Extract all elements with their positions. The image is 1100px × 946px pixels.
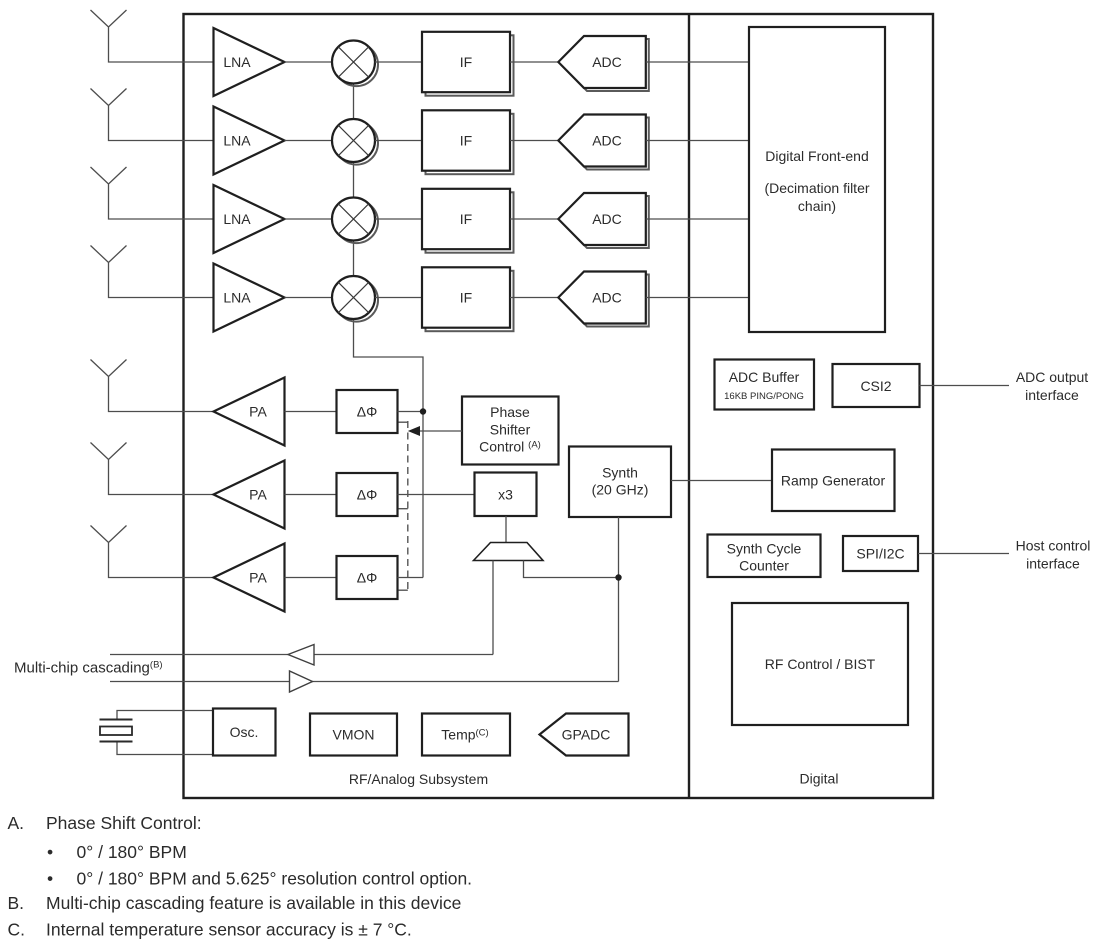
svg-text:C.: C.	[8, 920, 26, 940]
svg-text:SPI/I2C: SPI/I2C	[856, 546, 904, 562]
svg-text:VMON: VMON	[333, 727, 375, 743]
svg-text:ΔΦ: ΔΦ	[357, 570, 378, 586]
svg-text:Host control: Host control	[1016, 538, 1091, 554]
svg-text:Digital Front-end: Digital Front-end	[765, 148, 869, 164]
svg-text:Phase: Phase	[490, 404, 530, 420]
svg-text:Osc.: Osc.	[230, 724, 259, 740]
svg-text:•: •	[47, 842, 53, 862]
svg-text:RF Control / BIST: RF Control / BIST	[765, 656, 876, 672]
svg-text:(Decimation filter: (Decimation filter	[764, 180, 869, 196]
svg-text:Ramp Generator: Ramp Generator	[781, 473, 886, 489]
svg-text:LNA: LNA	[223, 290, 251, 306]
svg-text:Synth: Synth	[602, 465, 638, 481]
svg-text:PA: PA	[249, 404, 267, 420]
svg-text:LNA: LNA	[223, 54, 251, 70]
svg-text:LNA: LNA	[223, 211, 251, 227]
svg-text:chain): chain)	[798, 198, 836, 214]
svg-text:CSI2: CSI2	[860, 378, 891, 394]
svg-text:IF: IF	[460, 54, 472, 70]
svg-text:x3: x3	[498, 487, 513, 503]
svg-text:Shifter: Shifter	[490, 422, 531, 438]
svg-text:16KB PING/PONG: 16KB PING/PONG	[724, 391, 804, 402]
svg-text:A.: A.	[8, 813, 25, 833]
svg-text:Internal temperature sensor ac: Internal temperature sensor accuracy is …	[46, 920, 412, 940]
svg-text:RF/Analog Subsystem: RF/Analog Subsystem	[349, 771, 488, 787]
svg-text:interface: interface	[1026, 556, 1080, 572]
svg-text:ADC output: ADC output	[1016, 369, 1088, 385]
svg-text:0° / 180° BPM and 5.625° resol: 0° / 180° BPM and 5.625° resolution cont…	[77, 869, 473, 889]
svg-text:IF: IF	[460, 211, 472, 227]
svg-text:Multi-chip cascading(B): Multi-chip cascading(B)	[14, 660, 163, 677]
svg-text:ADC: ADC	[592, 211, 622, 227]
svg-text:PA: PA	[249, 570, 267, 586]
svg-text:ΔΦ: ΔΦ	[357, 404, 378, 420]
svg-text:(20 GHz): (20 GHz)	[592, 482, 649, 498]
svg-text:GPADC: GPADC	[562, 727, 611, 743]
svg-text:ADC: ADC	[592, 54, 622, 70]
svg-text:ADC: ADC	[592, 290, 622, 306]
svg-text:IF: IF	[460, 133, 472, 149]
svg-text:ADC Buffer: ADC Buffer	[729, 369, 800, 385]
svg-text:Synth Cycle: Synth Cycle	[727, 541, 802, 557]
svg-text:ΔΦ: ΔΦ	[357, 487, 378, 503]
svg-text:B.: B.	[8, 893, 25, 913]
svg-text:Digital: Digital	[800, 771, 839, 787]
svg-text:•: •	[47, 869, 53, 889]
svg-text:0° / 180° BPM: 0° / 180° BPM	[77, 842, 187, 862]
svg-text:Multi-chip cascading feature i: Multi-chip cascading feature is availabl…	[46, 893, 461, 913]
svg-text:PA: PA	[249, 487, 267, 503]
svg-text:LNA: LNA	[223, 133, 251, 149]
svg-text:Counter: Counter	[739, 558, 789, 574]
svg-text:ADC: ADC	[592, 133, 622, 149]
svg-text:interface: interface	[1025, 387, 1079, 403]
svg-text:IF: IF	[460, 290, 472, 306]
svg-text:Phase Shift Control:: Phase Shift Control:	[46, 813, 202, 833]
